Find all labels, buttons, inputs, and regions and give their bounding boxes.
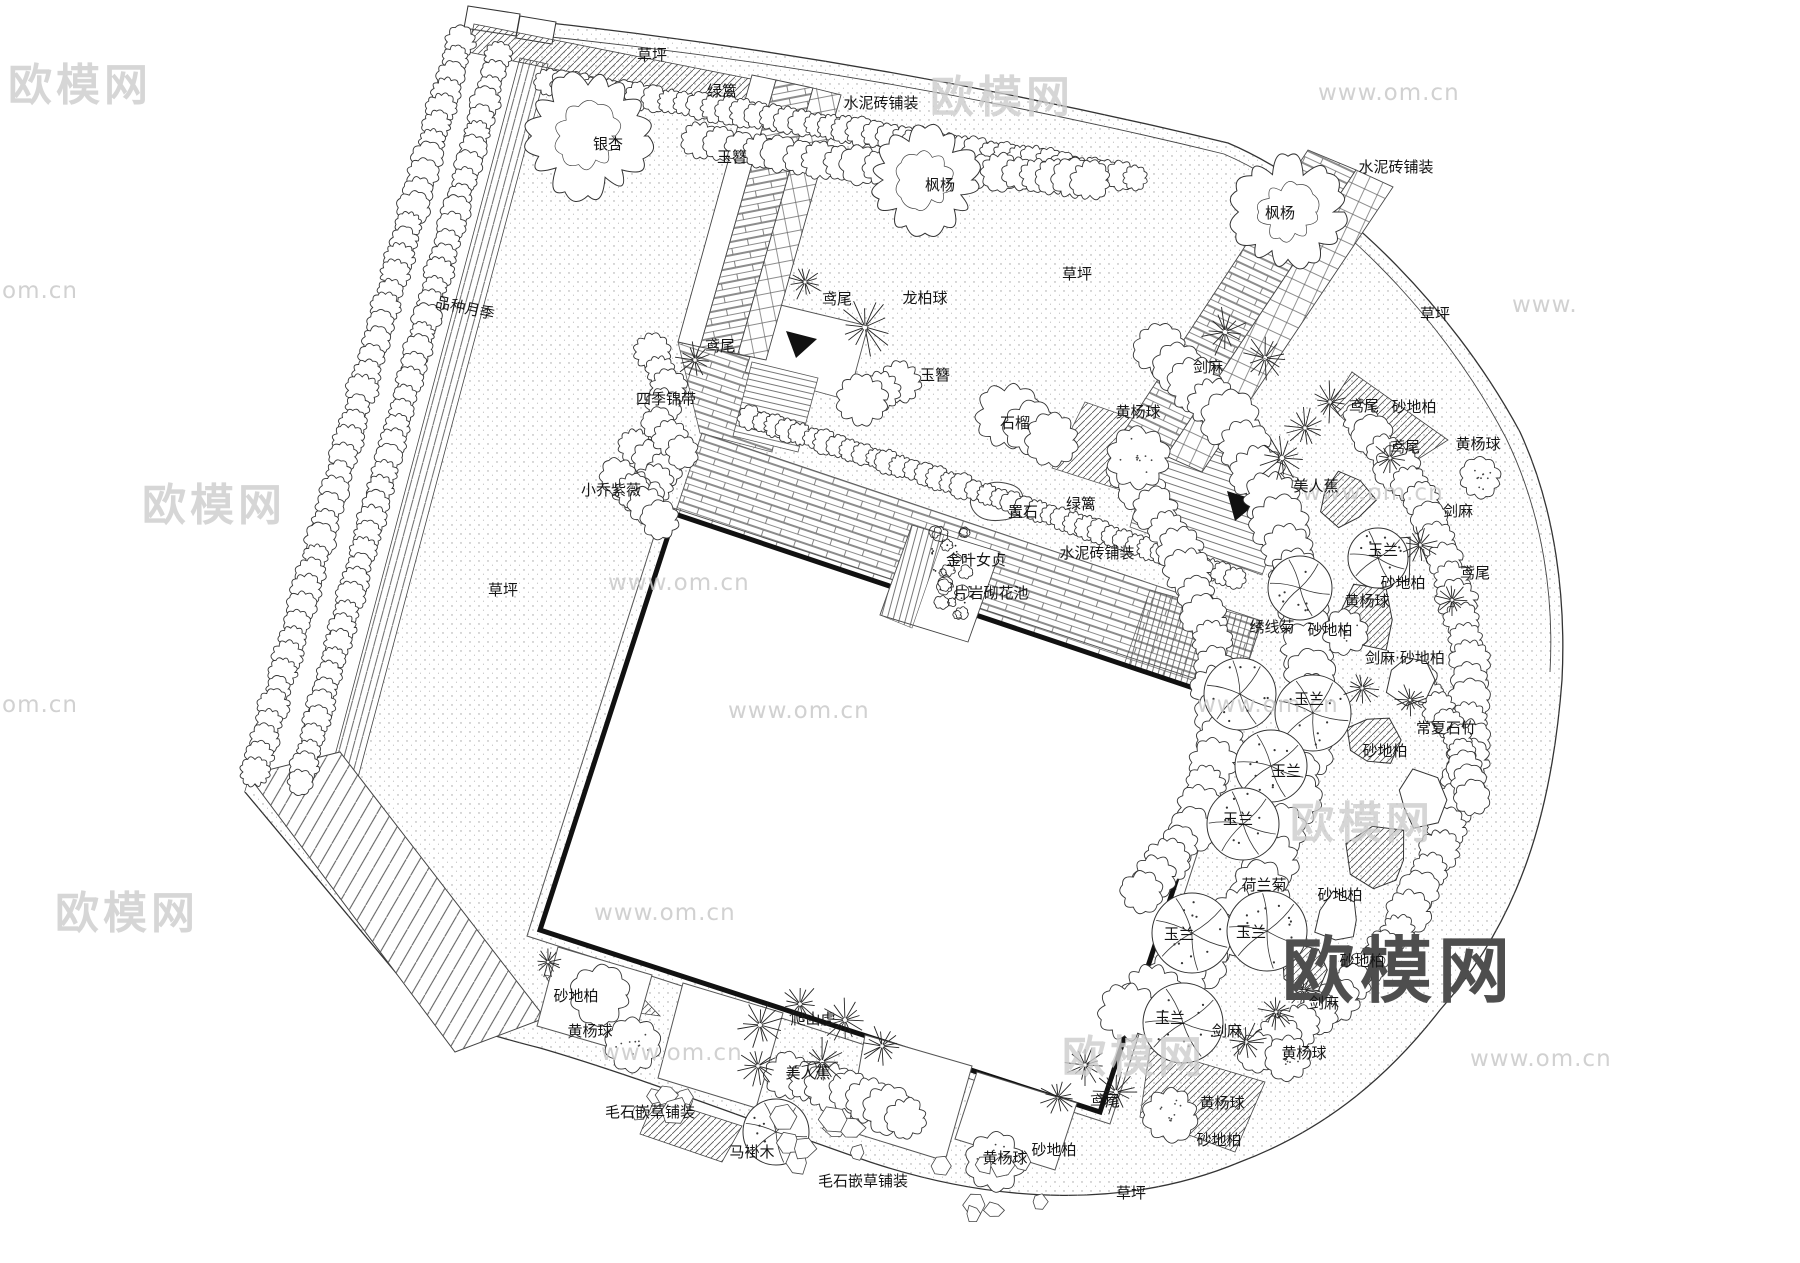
plant-label: 鸢尾 [1390,438,1420,456]
plant-label: 砂地柏 [1307,621,1352,639]
plant-label: 水泥砖铺装 [843,94,918,112]
plant-label: 剑麻 [1309,994,1339,1012]
plant-label: 绿篱 [1066,495,1096,513]
plant-label: 玉兰 [1271,762,1301,780]
plant-label: 黄杨球 [1115,403,1160,421]
plant-label: 玉簪 [717,148,747,166]
plant-label: 石榴 [1000,414,1030,432]
plant-label: 玉兰 [1236,923,1266,941]
plant-label: 枫杨 [925,176,955,194]
plant-label: 砂地柏 [1380,574,1425,592]
plant-label: 枫杨 [1265,204,1295,222]
rubble-stone [1033,1194,1048,1210]
plant-label: 黄杨球 [982,1149,1027,1167]
plant-label: 剑麻·砂地柏 [1365,649,1445,667]
plant-label: 小乔紫薇 [581,481,641,499]
plant-label: 黄杨球 [1199,1094,1244,1112]
plant-label: 剑麻 [1193,358,1223,376]
plant-label: 鸢尾 [822,290,852,308]
plant-label: 玉兰 [1223,810,1253,828]
plant-label: 水泥砖铺装 [1059,544,1134,562]
watermark-text: 欧模网 [8,60,152,111]
plant-label: 草坪 [1420,305,1450,323]
plant-label: 砂地柏 [1391,398,1436,416]
plant-label: 砂地柏 [1362,742,1407,760]
plant-label: 砂地柏 [1196,1131,1241,1149]
plant-label: 玉兰 [1368,541,1398,559]
rubble-stone [984,1202,1005,1216]
watermark-text: www. [1512,292,1578,318]
plant-label: 常夏石竹 [1416,719,1476,737]
plant-label: 砂地柏 [1317,886,1362,904]
watermark-text: 欧模网 [930,72,1074,123]
plant-label: 草坪 [637,46,667,64]
plant-label: 草坪 [1116,1184,1146,1202]
plant-label: 鸢尾 [1349,397,1379,415]
watermark-text: www.om.cn [728,698,870,724]
shrub-cloud [836,374,888,426]
plant-label: 玉簪 [920,366,950,384]
plant-label: 龙柏球 [902,289,947,307]
plant-label: 毛石嵌草铺装 [818,1172,908,1190]
plant-label: 黄杨球 [567,1022,612,1040]
plant-label: 黄杨球 [1455,435,1500,453]
plant-label: 绿篱 [707,82,737,100]
watermark-text: www.om.cn [594,900,736,926]
plant-label: 绣线菊 [1249,618,1294,636]
plant-label: 玉兰 [1294,690,1324,708]
plant-label: 黄杨球 [1281,1044,1326,1062]
watermark-text: www.om.cn [608,570,750,596]
plant-label: 片岩砌花池 [953,584,1028,602]
plant-label: 银杏 [593,135,623,153]
shrub-cloud [1123,165,1147,191]
plant-label: 鸢尾 [1090,1092,1120,1110]
plant-label: 美人蕉 [1293,477,1338,495]
site-plan-canvas: 欧模网欧模网www.om.cnom.cnwww.欧模网www.om.cnwww.… [0,0,1800,1263]
plant-label: 鸢尾 [1460,564,1490,582]
shrub-cloud [240,757,271,787]
watermark-text: www.om.cn [601,1040,743,1066]
watermark-text: 欧模网 [142,480,286,531]
watermark-text: om.cn [2,692,78,718]
plant-label: 美人蕉 [785,1064,830,1082]
plant-label: 四季锦带 [636,390,696,408]
plant-label: 砂地柏 [1031,1141,1076,1159]
watermark-text: 欧模网 [1290,798,1434,849]
watermark-text: www.om.cn [1470,1046,1612,1072]
plant-label: 金叶女贞 [946,551,1006,569]
plant-label: 毛石嵌草铺装 [605,1103,695,1121]
landscape-plan-svg: 欧模网欧模网www.om.cnom.cnwww.欧模网www.om.cnwww.… [0,0,1800,1263]
tree-symbol [1268,556,1332,620]
plant-label: 玉兰 [1164,925,1194,943]
watermark-text: om.cn [2,278,78,304]
watermark-text: 欧模网 [55,888,199,939]
plant-label: 剑麻 [1443,502,1473,520]
watermark-text: www.om.cn [1318,80,1460,106]
plant-label: 爬山虎 [790,1010,835,1028]
plant-label: 马褂木 [729,1143,774,1161]
plant-label: 草坪 [488,581,518,599]
plant-label: 水泥砖铺装 [1358,158,1433,176]
plant-label: 置石 [1008,503,1038,521]
plant-label: 黄杨球 [1344,592,1389,610]
plant-label: 玉兰 [1155,1009,1185,1027]
plant-label: 砂地柏 [553,987,598,1005]
watermark-text: 欧模网 [1062,1032,1206,1083]
plant-label: 砂地柏 [1339,952,1384,970]
shrub-cloud [666,435,699,469]
plant-label: 荷兰菊 [1241,876,1286,894]
plant-label: 剑麻 [1212,1022,1242,1040]
plant-label: 草坪 [1062,265,1092,283]
plant-label: 鸢尾 [705,337,735,355]
